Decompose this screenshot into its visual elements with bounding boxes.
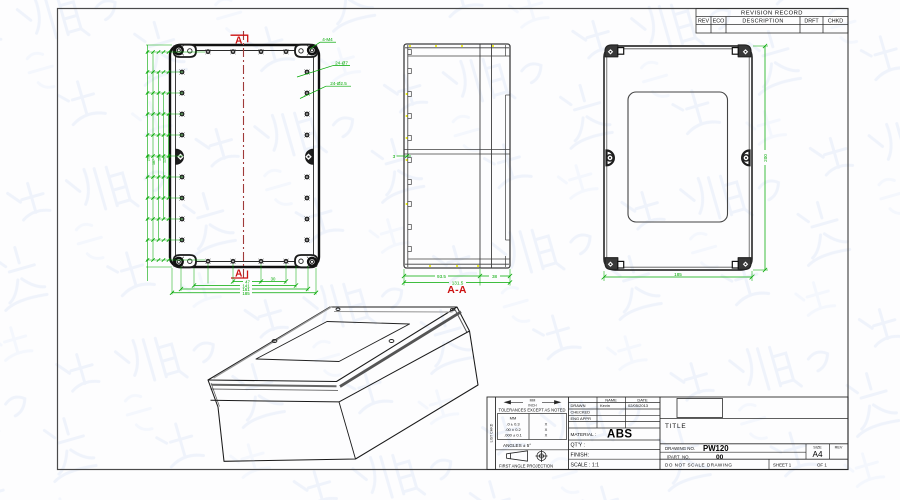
svg-text:185: 185 (674, 272, 682, 277)
svg-text:FINISH:: FINISH: (571, 452, 589, 458)
svg-text:REV: REV (835, 445, 843, 449)
svg-text:DRAWN: DRAWN (571, 403, 586, 408)
svg-text:3: 3 (393, 154, 396, 160)
svg-text:84: 84 (168, 154, 172, 158)
svg-text:200: 200 (763, 154, 768, 162)
svg-text:A4: A4 (812, 450, 822, 459)
svg-text:MATERIAL :: MATERIAL : (571, 432, 597, 437)
svg-text:SIZE: SIZE (813, 445, 822, 449)
svg-text:38: 38 (492, 274, 498, 279)
svg-text:LIST CHKD: LIST CHKD (489, 423, 493, 442)
svg-text:TITLE: TITLE (665, 423, 686, 430)
svg-text:NAME: NAME (605, 397, 617, 402)
svg-text:ENG APPR: ENG APPR (571, 416, 592, 421)
svg-text:DATE: DATE (637, 397, 648, 402)
svg-text:X: X (545, 422, 548, 427)
svg-text:DRAWING NO.: DRAWING NO. (665, 446, 695, 451)
svg-text:MM: MM (530, 398, 536, 402)
svg-text:Kevin: Kevin (600, 403, 610, 408)
svg-text:4-M4: 4-M4 (322, 37, 333, 42)
svg-text:187: 187 (152, 159, 156, 165)
svg-text:30: 30 (271, 277, 276, 282)
svg-text:ANGLES ± 5°: ANGLES ± 5° (503, 443, 531, 448)
svg-text:A-A: A-A (447, 284, 467, 296)
svg-text:02/05/2013: 02/05/2013 (628, 403, 649, 408)
svg-text:ECO: ECO (713, 19, 725, 25)
svg-text:REVISION RECORD: REVISION RECORD (741, 11, 803, 17)
svg-text:FIRST ANGLE PROJECTION: FIRST ANGLE PROJECTION (499, 463, 553, 468)
svg-text:CHKD: CHKD (828, 19, 843, 25)
svg-text:PW120: PW120 (703, 444, 729, 453)
svg-text:00: 00 (716, 454, 724, 461)
svg-text:DO NOT SCALE DRAWING: DO NOT SCALE DRAWING (665, 463, 732, 468)
svg-text:DESCRIPTION: DESCRIPTION (742, 19, 783, 25)
svg-text:200: 200 (147, 155, 151, 161)
svg-text:185: 185 (242, 291, 250, 296)
svg-text:TOLERANCES EXCEPT AS NOTED: TOLERANCES EXCEPT AS NOTED (499, 407, 566, 412)
svg-text:SCALE : 1:1: SCALE : 1:1 (571, 462, 600, 468)
svg-text:24-Ø7: 24-Ø7 (335, 61, 348, 66)
svg-text:.000 ± 0.1: .000 ± 0.1 (504, 433, 523, 438)
svg-text:SHEET 1: SHEET 1 (773, 463, 792, 468)
svg-text:168: 168 (158, 155, 162, 161)
svg-text:X: X (545, 427, 548, 432)
svg-text:CHECKED: CHECKED (571, 410, 591, 415)
svg-text:MM: MM (510, 416, 517, 421)
svg-text:X: X (545, 433, 548, 438)
svg-text:126: 126 (163, 157, 167, 163)
svg-text:QT'Y :: QT'Y : (571, 443, 585, 449)
svg-text:OF 1: OF 1 (817, 463, 827, 468)
svg-text:A: A (235, 269, 242, 280)
svg-text:.0 ± 0.3: .0 ± 0.3 (506, 422, 520, 427)
svg-text:REV: REV (698, 19, 709, 25)
svg-text:DRFT: DRFT (804, 19, 819, 25)
svg-text:/PART NO.: /PART NO. (667, 454, 690, 459)
svg-text:93.5: 93.5 (437, 274, 446, 279)
svg-text:A: A (235, 35, 242, 46)
svg-text:ABS: ABS (607, 429, 632, 441)
svg-text:.00 ± 0.2: .00 ± 0.2 (505, 427, 521, 432)
svg-text:24-Ø2.5: 24-Ø2.5 (330, 81, 347, 86)
